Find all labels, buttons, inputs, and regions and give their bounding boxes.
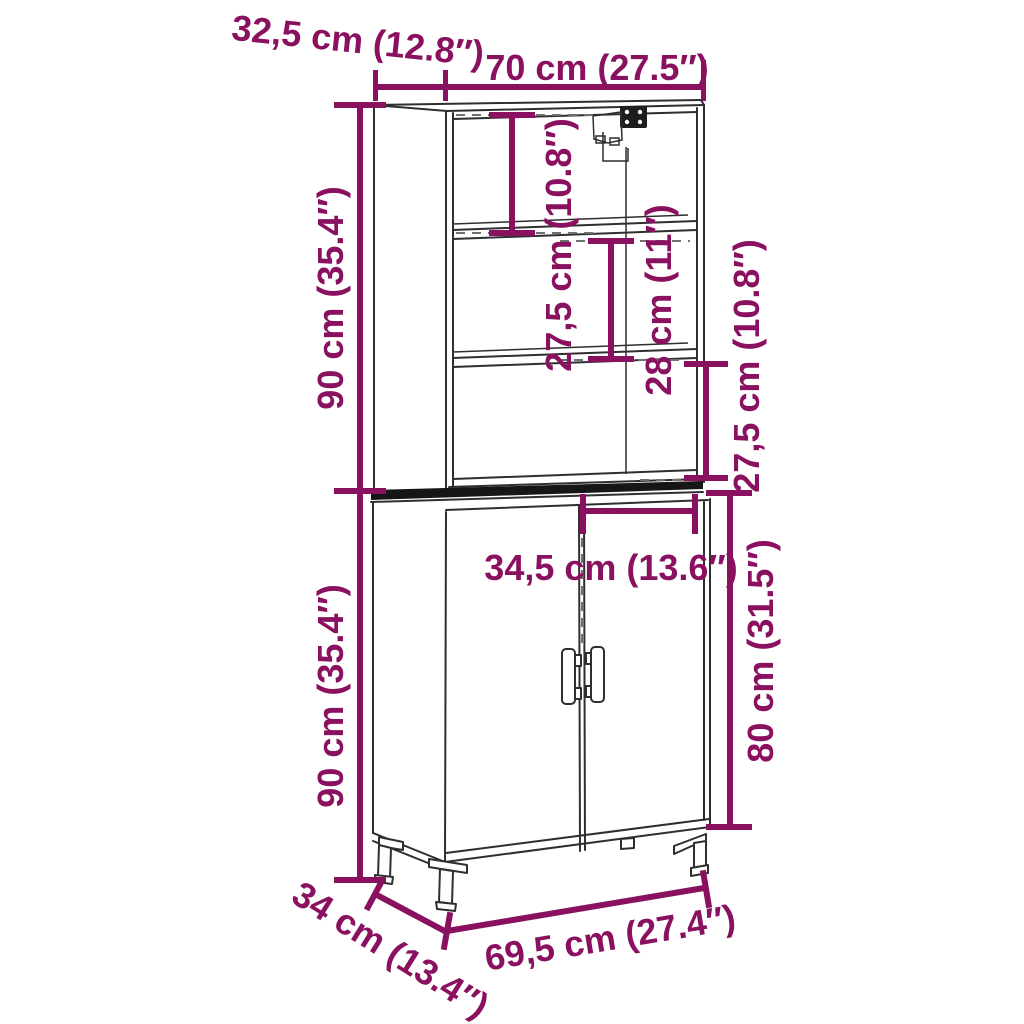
dim-label-shelf-gap-3: 27,5 cm (10.8″) <box>726 239 767 492</box>
wall-mount-bracket-icon <box>593 106 647 161</box>
dim-label-base-depth: 34 cm (13.4″) <box>285 873 496 1024</box>
right-door-handle <box>586 647 604 702</box>
dim-door-height: 80 cm (31.5″) <box>706 490 781 830</box>
back-right-foot <box>621 838 634 849</box>
upper-top-back-edge <box>374 100 701 105</box>
left-door-handle <box>562 649 581 704</box>
dim-label-top-depth: 32,5 cm (12.8″) <box>230 7 486 74</box>
dim-label-door-width: 34,5 cm (13.6″) <box>484 547 737 588</box>
dim-top: 32,5 cm (12.8″) 70 cm (27.5″) <box>230 7 709 101</box>
dim-door-width: 34,5 cm (13.6″) <box>484 494 737 588</box>
dim-label-lower-height: 90 cm (35.4″) <box>310 584 351 807</box>
dim-label-upper-height: 90 cm (35.4″) <box>310 186 351 409</box>
dimension-diagram: 32,5 cm (12.8″) 70 cm (27.5″) 90 cm (35.… <box>0 0 1024 1024</box>
dim-shelf-gap-1: 27,5 cm (10.8″) <box>489 112 579 372</box>
dim-base: 34 cm (13.4″) 69,5 cm (27.4″) <box>285 870 738 1024</box>
door-bottom-line <box>446 819 709 853</box>
cabinet-legs <box>375 834 708 911</box>
dim-label-door-height: 80 cm (31.5″) <box>740 539 781 762</box>
dim-label-shelf-gap-2: 28 cm (11″) <box>638 204 679 395</box>
dim-label-base-width: 69,5 cm (27.4″) <box>482 896 739 978</box>
front-right-leg <box>674 834 708 876</box>
back-left-leg <box>375 837 403 884</box>
front-left-leg <box>429 859 467 911</box>
lower-left-front-edge <box>445 512 446 861</box>
lower-bottom-front-edge <box>445 827 710 862</box>
dim-label-top-width: 70 cm (27.5″) <box>485 47 708 88</box>
upper-bottom-inner <box>453 470 697 479</box>
upper-top-front-edge <box>447 105 704 111</box>
dim-label-shelf-gap-1: 27,5 cm (10.8″) <box>538 118 579 371</box>
